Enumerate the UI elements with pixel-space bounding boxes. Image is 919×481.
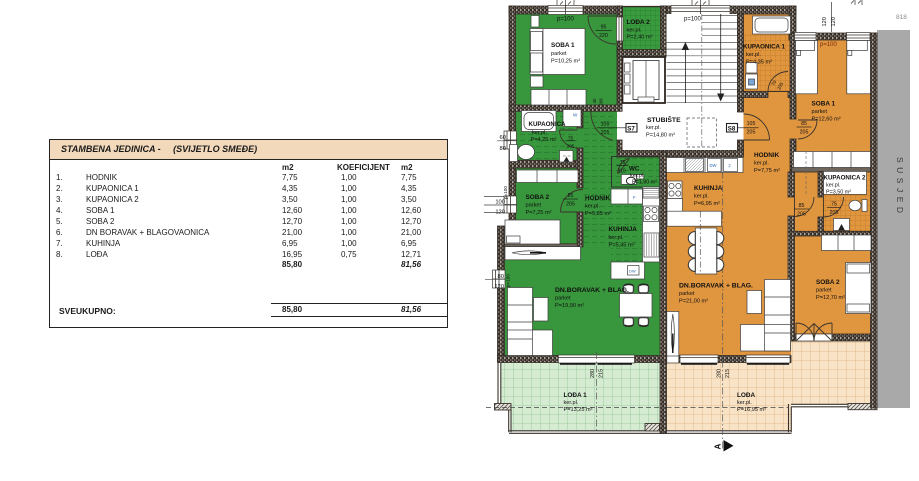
svg-text:P=16,95 m²: P=16,95 m² <box>737 407 766 413</box>
svg-text:P=4,25 m²: P=4,25 m² <box>531 137 557 143</box>
svg-text:80: 80 <box>500 146 506 152</box>
svg-text:W: W <box>573 113 578 118</box>
svg-text:280: 280 <box>717 369 723 378</box>
svg-text:120: 120 <box>494 284 504 290</box>
svg-text:P=5,85 m²: P=5,85 m² <box>585 211 611 217</box>
svg-text:ker.pl.: ker.pl. <box>737 400 752 406</box>
svg-text:P=7,25 m²: P=7,25 m² <box>526 210 552 216</box>
svg-text:205: 205 <box>566 202 575 208</box>
svg-text:P=6,95 m²: P=6,95 m² <box>694 201 720 207</box>
svg-text:P=14,80 m²: P=14,80 m² <box>646 133 675 139</box>
svg-text:120: 120 <box>822 17 828 27</box>
svg-text:205: 205 <box>747 130 756 136</box>
svg-text:215: 215 <box>599 369 605 378</box>
svg-text:75: 75 <box>831 202 837 208</box>
svg-text:205: 205 <box>601 130 610 136</box>
svg-text:parket: parket <box>526 203 542 209</box>
svg-text:ker.pl.: ker.pl. <box>746 52 761 58</box>
svg-text:DN.BORAVAK + BLAG.: DN.BORAVAK + BLAG. <box>679 283 753 290</box>
svg-text:105: 105 <box>601 122 610 128</box>
svg-text:KUPAONICA 2: KUPAONICA 2 <box>824 175 866 182</box>
svg-text:ker.pl.: ker.pl. <box>585 204 600 210</box>
svg-text:ker.pl.: ker.pl. <box>826 183 840 189</box>
svg-text:p=100: p=100 <box>503 186 508 199</box>
svg-text:SOBA 2: SOBA 2 <box>816 279 840 286</box>
svg-text:ker.pl.: ker.pl. <box>694 194 709 200</box>
svg-text:parket: parket <box>555 296 571 302</box>
svg-text:parket: parket <box>812 109 828 115</box>
svg-text:310: 310 <box>617 168 626 174</box>
svg-text:ker.pl.: ker.pl. <box>630 173 644 179</box>
svg-text:ker.pl.: ker.pl. <box>564 400 579 406</box>
svg-text:KUHINJA: KUHINJA <box>609 226 638 233</box>
svg-text:F: F <box>729 164 732 169</box>
svg-text:ker.pl.: ker.pl. <box>609 235 624 241</box>
svg-text:P=12,70 m²: P=12,70 m² <box>816 295 845 301</box>
svg-text:ker.pl.: ker.pl. <box>532 130 547 136</box>
svg-text:205: 205 <box>797 212 806 218</box>
svg-text:KUPAONICA: KUPAONICA <box>529 121 567 128</box>
svg-text:818: 818 <box>896 14 907 21</box>
svg-text:100: 100 <box>495 200 505 206</box>
svg-text:85: 85 <box>799 203 805 209</box>
svg-text:F: F <box>633 195 636 200</box>
svg-text:40: 40 <box>592 98 597 103</box>
svg-text:205: 205 <box>830 210 839 216</box>
svg-text:P=2,40 m²: P=2,40 m² <box>627 35 653 41</box>
svg-text:P=21,00 m²: P=21,00 m² <box>679 299 708 305</box>
svg-text:parket: parket <box>551 51 567 57</box>
svg-text:S8: S8 <box>728 125 736 132</box>
svg-text:LOĐA 2: LOĐA 2 <box>627 19 651 26</box>
svg-text:parket: parket <box>679 291 695 297</box>
svg-text:P=1,90 m²: P=1,90 m² <box>632 180 657 186</box>
svg-text:LOĐA 1: LOĐA 1 <box>564 392 588 399</box>
svg-text:ker.pl.: ker.pl. <box>754 161 769 167</box>
svg-text:DN.BORAVAK + BLAG.: DN.BORAVAK + BLAG. <box>555 287 629 294</box>
svg-text:HODNIK: HODNIK <box>754 152 780 159</box>
svg-text:85: 85 <box>801 121 807 127</box>
svg-text:215: 215 <box>725 369 731 378</box>
svg-text:KUPAONICA 1: KUPAONICA 1 <box>743 44 785 51</box>
svg-text:p=100: p=100 <box>820 42 838 48</box>
svg-text:75: 75 <box>568 136 574 141</box>
svg-text:P=10,25 m²: P=10,25 m² <box>551 59 580 65</box>
svg-text:206: 206 <box>599 98 604 106</box>
svg-text:P=7,75 m²: P=7,75 m² <box>754 168 780 174</box>
svg-text:205: 205 <box>567 144 575 149</box>
svg-text:WC: WC <box>629 166 640 173</box>
svg-text:280: 280 <box>590 369 596 378</box>
svg-text:LOĐA: LOĐA <box>737 392 755 399</box>
svg-text:S7: S7 <box>627 125 635 132</box>
svg-text:P=4,35 m²: P=4,35 m² <box>746 60 772 66</box>
svg-text:P=13,25 m²: P=13,25 m² <box>564 407 593 413</box>
svg-text:P=3,50 m²: P=3,50 m² <box>826 190 851 196</box>
svg-text:A: A <box>714 444 723 450</box>
svg-text:p=100: p=100 <box>557 17 575 23</box>
svg-text:60: 60 <box>500 135 506 141</box>
svg-text:120: 120 <box>831 17 837 27</box>
svg-text:85: 85 <box>568 193 574 199</box>
svg-text:P=12,60 m²: P=12,60 m² <box>812 117 841 123</box>
svg-text:95: 95 <box>601 25 607 31</box>
svg-text:ker.pl.: ker.pl. <box>627 28 642 34</box>
svg-text:SOBA 2: SOBA 2 <box>526 194 550 201</box>
svg-text:HODNIK: HODNIK <box>585 195 611 202</box>
svg-text:KUHINJA: KUHINJA <box>694 185 723 192</box>
svg-text:SOBA 1: SOBA 1 <box>551 42 575 49</box>
svg-text:105: 105 <box>747 121 756 127</box>
svg-text:220: 220 <box>599 33 608 39</box>
svg-text:p=100: p=100 <box>684 17 702 23</box>
svg-text:ker.pl.: ker.pl. <box>646 125 661 131</box>
svg-text:DW: DW <box>710 163 717 168</box>
svg-text:parket: parket <box>816 288 832 294</box>
svg-text:SOBA 1: SOBA 1 <box>812 101 836 108</box>
svg-text:DW: DW <box>629 268 636 273</box>
svg-text:205: 205 <box>800 130 809 136</box>
svg-text:P=19,90 m²: P=19,90 m² <box>555 303 584 309</box>
svg-text:p=100: p=100 <box>506 274 511 287</box>
svg-text:STUBIŠTE: STUBIŠTE <box>647 115 681 124</box>
svg-text:P=5,45 m²: P=5,45 m² <box>609 243 635 249</box>
svg-text:SUSJED: SUSJED <box>895 157 905 218</box>
